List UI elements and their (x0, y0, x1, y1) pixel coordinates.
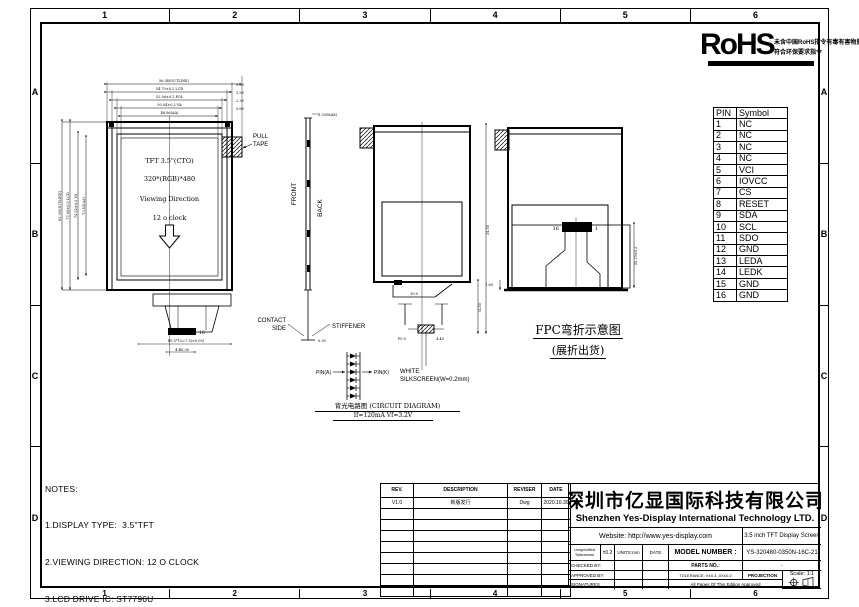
description-value: 新版发行 (414, 498, 508, 509)
checked-by-label: CHECKED BY: (569, 561, 615, 571)
zone-row: C (820, 305, 828, 447)
signature-value (615, 580, 643, 589)
dim-front-fpc-hole: 4-R0.30 (175, 348, 189, 352)
revision-table: REV. DESCRIPTION REVISER DATE V1.0 新版发行 … (380, 483, 571, 597)
pull-tape-label-1: PULL (253, 134, 269, 140)
zone-col: 1 (40, 8, 169, 22)
unspecified-tolerance-label: Unspecified Tolerances (569, 545, 601, 561)
company-name-cn: 深圳市亿显国际科技有限公司 (569, 486, 821, 513)
fold-pin1-label: 1 (595, 226, 598, 232)
title-block: 深圳市亿显国际科技有限公司 Shenzhen Yes-Display Inter… (568, 483, 820, 588)
date-value: 2020.10.30 (542, 498, 571, 509)
zone-row: B (820, 163, 828, 305)
folded-fpc-view (495, 128, 634, 290)
dim-top-5: 48.96(AA) (161, 111, 179, 115)
drawing-sheet: 1 2 3 4 5 6 1 2 3 4 5 6 A B C D A B C D … (0, 0, 859, 607)
silkscreen-label-1: WHITE (400, 369, 419, 375)
units-label: UNITS:mm (615, 545, 643, 561)
fpc-fold-subtitle: (展折出货) (550, 342, 607, 359)
unspecified-tolerance-value: ±0.2 (601, 545, 615, 561)
projection-label: PROJECTION (743, 571, 783, 580)
reviser-value: Dwg (508, 498, 542, 509)
dim-right-1: 0.80 (236, 83, 244, 87)
backlight-circuit (333, 352, 372, 400)
side-view-back-label: BACK (317, 198, 324, 216)
zone-row: A (30, 22, 40, 163)
side-view-front-label: FRONT (291, 183, 298, 205)
signatures-label: SIGNATURES (569, 580, 615, 589)
front-view-clock: 12 o clock (153, 214, 187, 222)
parts-no-label: PARTS NO.: (669, 561, 743, 571)
revision-header-row: REV. DESCRIPTION REVISER DATE (381, 484, 571, 498)
dim-left-2: 77.00±0.2 LCD (66, 192, 70, 220)
circuit-diagram-caption: 背光电路图 (CIRCUIT DIAGRAM) (315, 400, 460, 412)
circuit-spec: If=120mA Vf=3.2V (333, 412, 433, 421)
dim-side-top: 2.30(MAX) (318, 113, 338, 117)
side-view (288, 114, 330, 340)
zone-numbers-top: 1 2 3 4 5 6 (40, 8, 820, 22)
note-line: 1.DISPLAY TYPE: 3.5"TFT (45, 519, 305, 531)
dim-left-3: 74.52±0.2 VA (74, 193, 78, 218)
front-view-title: TFT 3.5"(CTO) (145, 157, 194, 165)
parts-no-value: - (743, 561, 821, 571)
dim-left-4: 73.44(AA) (82, 196, 86, 214)
zone-col: 5 (560, 589, 690, 598)
zone-row: B (30, 163, 40, 305)
dim-back-height: 14.50 (478, 303, 482, 313)
dim-back-len: 4.40 (436, 337, 444, 341)
dim-top-3: 52.56±0.2 POL (156, 95, 184, 99)
scale-cell: Scale: 1:1 (783, 571, 821, 589)
revision-row-empty (381, 553, 571, 564)
dim-top-1: 56.04(OUTLINE) (159, 79, 190, 83)
product-name: 3.5 inch TFT Display Screen (743, 528, 821, 545)
fpc-fold-caption: FPC弯折示意图 (展折出货) (527, 319, 629, 359)
tolerance-note: TOLERANCE: X±0.3,.XX±0.2 (669, 571, 743, 580)
note-line: 2.VIEWING DIRECTION: 12 O CLOCK (45, 556, 305, 568)
website: Website: http://www.yes-display.com (569, 528, 743, 545)
revision-row-empty (381, 542, 571, 553)
zone-col: 6 (690, 8, 820, 22)
pull-tape-label-2: TAPE (253, 142, 268, 148)
checked-by-value (615, 561, 643, 571)
stiffener-label: STIFFENER (332, 324, 366, 330)
dim-fold-height: 45.10±0.3 (634, 247, 638, 266)
zone-col: 6 (690, 589, 820, 598)
zone-letters-right: A B C D (820, 22, 828, 588)
zone-row: D (30, 446, 40, 588)
front-view-resolution: 320*(RGB)*480 (144, 175, 195, 183)
dim-right-4: 0.60 (236, 107, 244, 111)
dim-right-3: 2.30 (236, 99, 244, 103)
revision-row-empty (381, 575, 571, 586)
revision-row: V1.0 新版发行 Dwg 2020.10.30 (381, 498, 571, 509)
revision-row-empty (381, 586, 571, 597)
dim-left-1: 83.30(OUTLINE) (58, 190, 62, 221)
dim-side-bottom: 0.30 (318, 339, 326, 343)
zone-col: 2 (169, 8, 299, 22)
contact-side-label-2: SIDE (272, 326, 286, 332)
front-fpc-pin16: 16 (199, 330, 205, 336)
dim-right-2: 1.50 (236, 91, 244, 95)
description-col-header: DESCRIPTION (414, 484, 508, 498)
notes-block: NOTES: 1.DISPLAY TYPE: 3.5"TFT 2.VIEWING… (45, 458, 305, 607)
circuit-pin-a-label: PIN(A) (316, 370, 331, 376)
dim-back-width: 10.0 (410, 292, 418, 296)
contact-side-label-1: CONTACT (257, 318, 286, 324)
back-view (360, 122, 486, 370)
rev-col-header: REV. (381, 484, 414, 498)
front-view-viewing-direction: Viewing Direction (139, 195, 199, 203)
zone-col: 4 (430, 8, 560, 22)
signature-date-value (643, 580, 669, 589)
fold-pin16-label: 16 (553, 226, 559, 232)
zone-row: C (30, 305, 40, 447)
fpc-fold-title: FPC弯折示意图 (533, 321, 623, 339)
checked-date-value (643, 561, 669, 571)
date-col-header: DATE (542, 484, 571, 498)
revision-row-empty (381, 564, 571, 575)
approval-note: All Pages Of This Edition Approved (669, 580, 783, 589)
zone-col: 3 (299, 8, 429, 22)
approved-by-value (615, 571, 643, 580)
rev-value: V1.0 (381, 498, 414, 509)
zone-letters-left: A B C D (30, 22, 40, 588)
approved-by-label: APPROVED BY: (569, 571, 615, 580)
note-line: 3.LCD DRIVE IC: ST7796U (45, 593, 305, 605)
model-number-value: YS-320480-0350N-16C-21 (743, 545, 821, 561)
reviser-col-header: REVISER (508, 484, 542, 498)
dim-front-fpc-pitch: P0.5*15=7.5(±0.05) (168, 339, 205, 343)
dim-top-4: 50.04±0.2 VA (157, 103, 182, 107)
dim-top-2: 54.70±0.2 LCD (156, 87, 184, 91)
silkscreen-label-2: SILKSCREEN(W=0.2mm) (400, 377, 470, 383)
revision-row-empty (381, 531, 571, 542)
dim-fold-gap: 1.60 (485, 283, 493, 287)
dim-back-total: 34.50 (486, 225, 490, 235)
zone-col: 5 (560, 8, 690, 22)
projection-symbol-icon (787, 577, 817, 588)
company-name-en: Shenzhen Yes-Display International Techn… (576, 513, 815, 524)
approved-date-value (643, 571, 669, 580)
dim-back-pitch: P0.5 (398, 337, 406, 341)
model-number-label: MODEL NUMBER : (669, 545, 743, 561)
date-label: DATE (643, 545, 669, 561)
notes-title: NOTES: (45, 483, 305, 495)
revision-row-empty (381, 520, 571, 531)
zone-row: D (820, 446, 828, 588)
revision-row-empty (381, 509, 571, 520)
circuit-pin-k-label: PIN(K) (374, 370, 389, 376)
